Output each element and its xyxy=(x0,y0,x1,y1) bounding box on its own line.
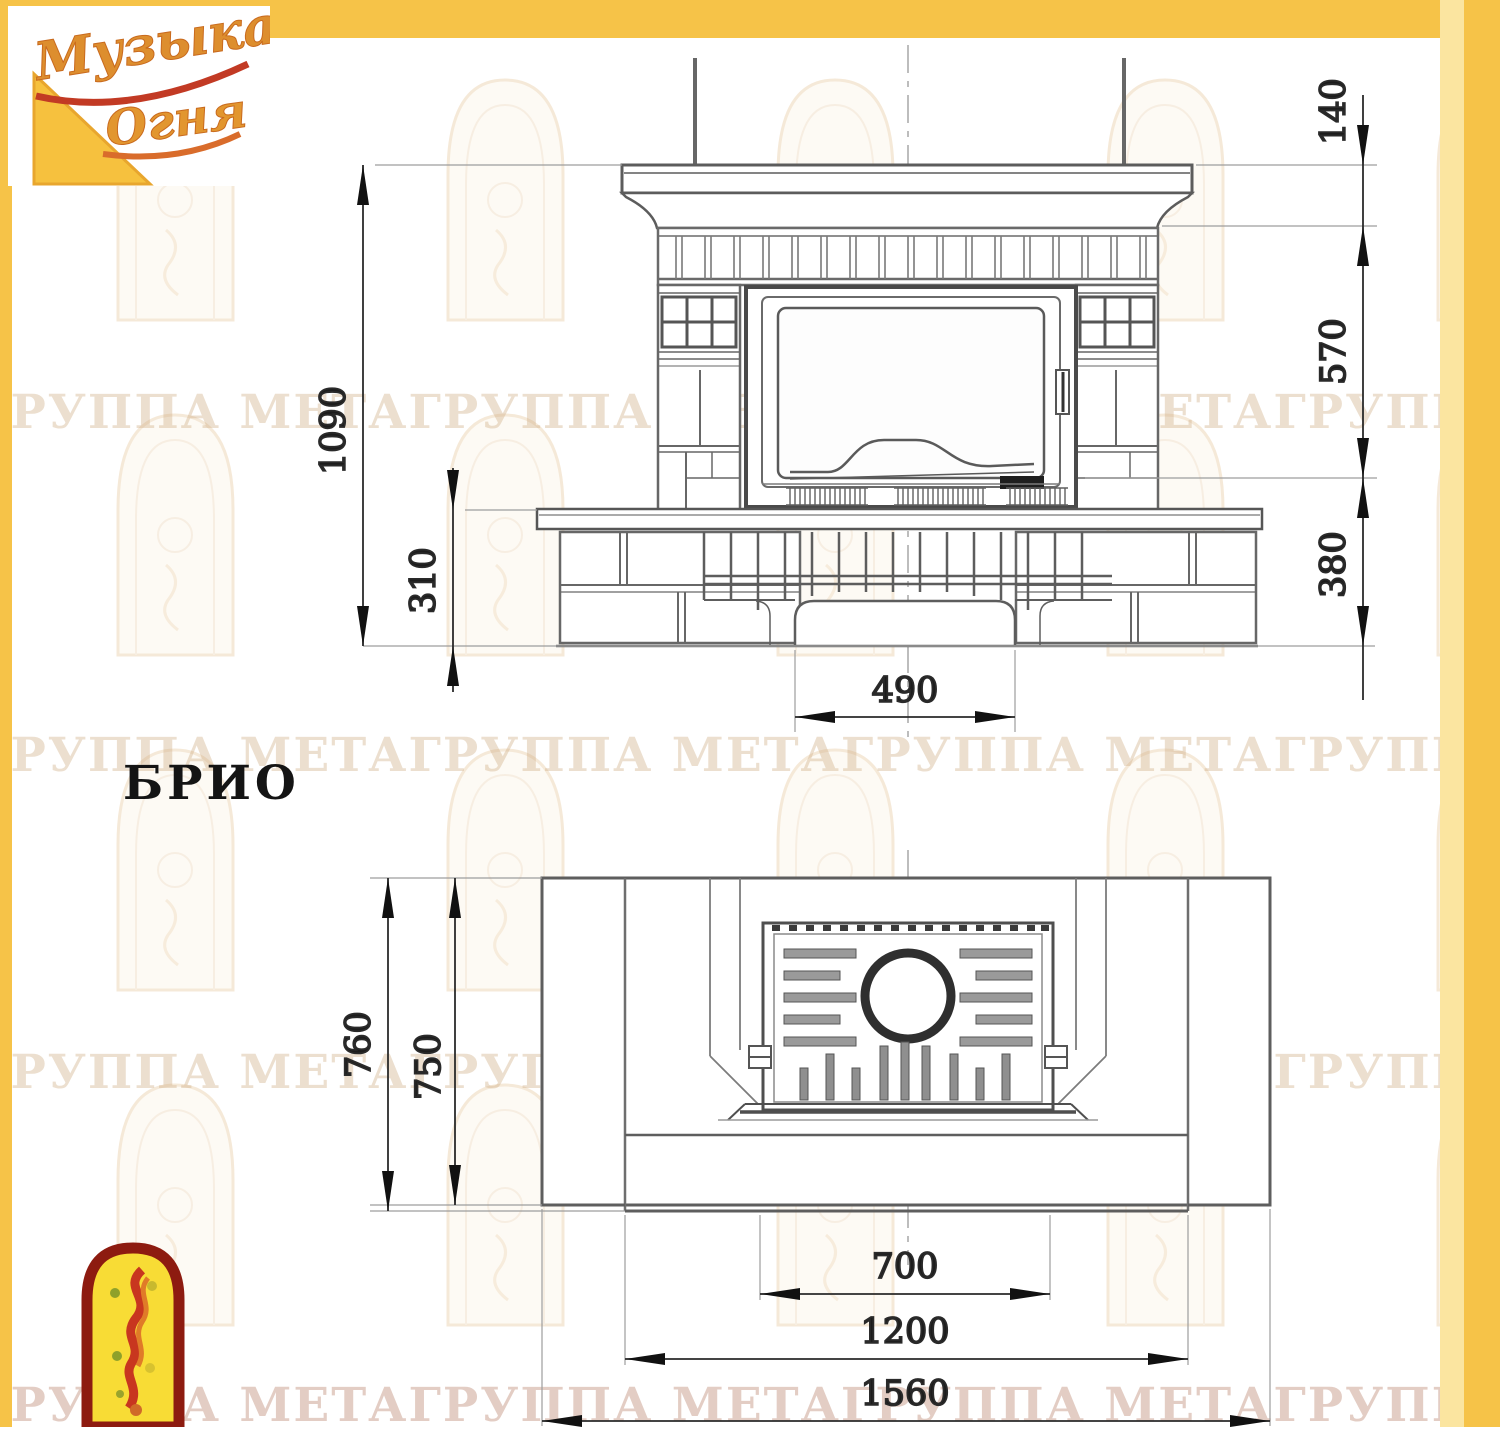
left-column xyxy=(658,285,740,510)
dim-label-760: 760 xyxy=(339,1011,379,1078)
dim-760: 760 xyxy=(339,878,394,1211)
logo-word-1: Музыка xyxy=(29,6,270,93)
dim-label-380: 380 xyxy=(1314,531,1354,598)
door-hinge xyxy=(1056,370,1069,414)
dim-label-570: 570 xyxy=(1314,318,1354,385)
dim-label-310: 310 xyxy=(404,547,444,614)
plan-view-drawing xyxy=(542,878,1270,1211)
dim-1560: 1560 xyxy=(542,1374,1270,1427)
page: { "page": { "model_label": "БРИО" }, "br… xyxy=(0,0,1500,1427)
base-right-blocks xyxy=(1016,532,1256,643)
dim-label-1560: 1560 xyxy=(860,1374,949,1414)
dim-label-1200: 1200 xyxy=(860,1312,949,1352)
dim-label-140: 140 xyxy=(1314,78,1354,145)
dim-label-750: 750 xyxy=(409,1033,449,1100)
dim-750: 750 xyxy=(409,878,461,1205)
frame-band-left xyxy=(0,0,12,1427)
dim-right-chain: 140 570 380 xyxy=(1314,78,1369,700)
frame-band-right xyxy=(1464,0,1500,1427)
dim-label-1090: 1090 xyxy=(314,386,354,475)
flue-circle xyxy=(865,953,951,1039)
brand-logo: Музыка Огня xyxy=(8,6,270,186)
dentil-frieze xyxy=(658,228,1158,285)
dim-490: 490 xyxy=(795,671,1015,723)
dim-310: 310 xyxy=(404,468,459,692)
chimney-lines xyxy=(695,58,1124,165)
technical-drawing: 1090 310 140 570 380 490 xyxy=(0,0,1500,1427)
dim-1200: 1200 xyxy=(625,1312,1188,1365)
front-elevation-drawing xyxy=(537,58,1262,646)
base-left-blocks xyxy=(560,532,800,643)
logo-word-2: Огня xyxy=(102,83,250,158)
firebox-door xyxy=(746,287,1076,507)
bottom-emblem xyxy=(80,1238,186,1427)
frame-band-right-pale xyxy=(1440,0,1464,1427)
hearth-shelf xyxy=(537,509,1262,529)
mantel-shelf xyxy=(622,165,1192,228)
plan-firebox-insert xyxy=(728,923,1088,1120)
right-column xyxy=(1076,285,1158,510)
dim-label-490: 490 xyxy=(872,671,939,711)
dim-1090: 1090 xyxy=(314,165,369,646)
dim-label-700: 700 xyxy=(872,1247,939,1287)
dim-700: 700 xyxy=(760,1247,1050,1300)
door-handle xyxy=(1000,476,1044,489)
model-name-label: БРИО xyxy=(123,756,300,811)
